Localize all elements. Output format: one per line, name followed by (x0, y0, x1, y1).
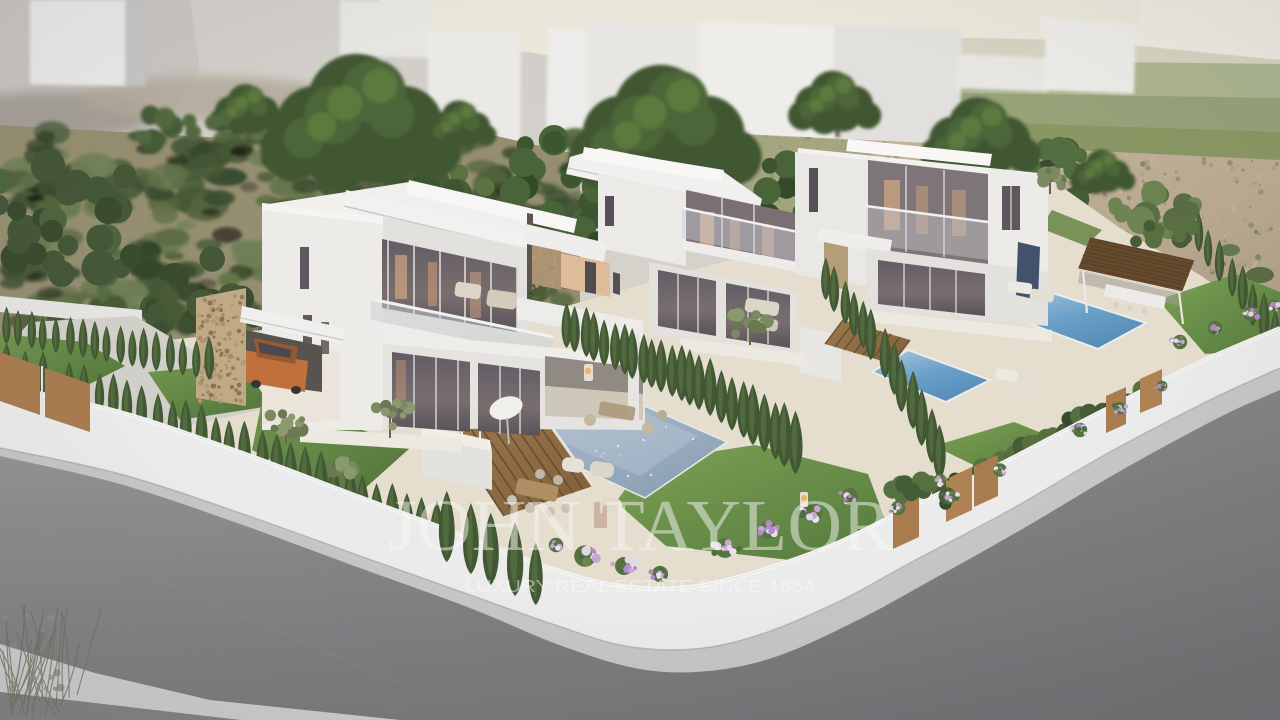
svg-text:LUXURY REAL ESTATE SINCE 1864: LUXURY REAL ESTATE SINCE 1864 (465, 576, 815, 596)
svg-text:JOHN TAYLOR: JOHN TAYLOR (388, 485, 893, 566)
